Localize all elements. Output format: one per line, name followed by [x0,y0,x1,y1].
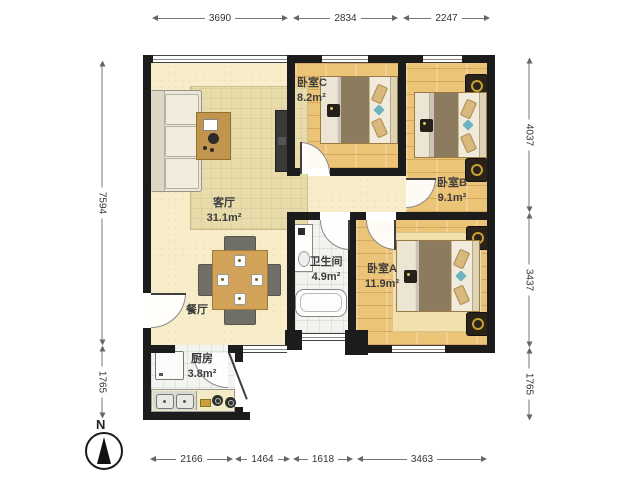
dimension-bottom-3: 1618 [293,452,353,466]
wall-segment [350,212,366,220]
remote-on-table [203,119,218,131]
room-name: 卧室C [297,76,327,91]
floor-plan: 客厅 31.1m² 餐厅 厨房 3.8m² 卫生间 4.9m² 卧室C 8.2m… [0,0,640,480]
sofa-cushion [165,126,199,157]
bedroom-c-bed [320,76,398,144]
nightstand [466,312,489,336]
sofa-back [151,91,165,191]
room-name: 客厅 [207,196,242,211]
bed-tray [404,270,417,283]
wall-segment [345,330,368,355]
room-name: 卧室A [365,262,399,277]
dimension-left-1: 7594 [96,61,110,346]
nightstand [465,158,488,182]
wall-segment [228,345,243,353]
wall-segment [487,55,495,353]
bathroom-window [302,333,345,341]
pillow [371,84,388,105]
bathtub [295,289,347,317]
room-label-bedroom-b: 卧室B 9.1m² [437,176,467,206]
room-area: 11.9m² [365,277,399,292]
wall-segment [143,345,175,353]
tv-cabinet-detail [278,137,286,145]
north-label: N [96,417,105,432]
bed-tray [327,104,340,117]
pillow [460,99,477,120]
bedroom-b-window [423,55,462,63]
coffee-table [196,112,231,160]
dimension-value: 7594 [97,188,108,218]
room-area: 4.9m² [310,270,343,285]
wall-segment [285,330,302,350]
dining-window [243,345,287,353]
wall-segment [396,212,495,220]
bedroom-a-bed [396,240,480,312]
wall-segment [398,63,406,168]
plate [234,293,246,305]
dimension-left-2: 1765 [96,346,110,419]
dimension-value: 1464 [247,454,277,465]
bed-headboard [390,77,397,143]
fridge-handle [159,373,163,376]
sink-basin [156,394,174,409]
fridge [155,351,184,380]
dimension-value: 1618 [308,454,338,465]
dimension-right-3: 1765 [523,348,537,421]
dimension-value: 3463 [407,454,437,465]
accent-pillow [373,104,384,115]
compass-circle [85,432,123,470]
room-label-dining: 餐厅 [186,303,208,318]
room-area: 9.1m² [437,191,467,206]
wall-segment [287,213,295,341]
dimension-top-3: 2247 [403,11,490,25]
bedroom-c-door-leaf [300,142,302,174]
plate [234,255,246,267]
dimension-bottom-1: 2166 [150,452,233,466]
dimension-value: 2247 [431,13,461,24]
dimension-value: 1765 [524,369,535,399]
counter-item [200,399,211,407]
wall-segment [287,212,320,220]
dining-table [212,250,268,310]
teapot [208,133,219,144]
bedroom-b-door-leaf [406,178,436,180]
north-arrow-icon [97,437,111,464]
wall-segment [368,345,392,353]
plate [251,274,263,286]
living-room-window [153,55,287,63]
bathtub-inner [300,293,342,312]
bed-pillows [451,241,472,311]
dimension-top-1: 3690 [152,11,288,25]
bed-pillows [369,77,390,143]
wall-segment [445,345,495,353]
room-label-bedroom-a: 卧室A 11.9m² [365,262,399,292]
wall-segment [330,168,406,176]
sofa [150,90,202,192]
wall-segment [143,328,151,420]
pillow [453,285,470,306]
pillow [453,249,470,270]
pillow [460,133,477,154]
stove-burner [212,395,223,406]
pillow [371,118,388,139]
wall-segment [235,353,243,362]
kitchen-sink-unit [153,391,197,410]
room-name: 厨房 [188,352,217,367]
dimension-value: 2166 [176,454,206,465]
bathroom-door-leaf [348,220,350,250]
cup [210,148,214,152]
cup [203,146,207,150]
accent-pillow [462,119,473,130]
faucet [298,228,305,235]
bed-blanket [415,93,458,157]
room-area: 31.1m² [207,211,242,226]
dimension-right-2: 3437 [523,213,537,348]
wall-segment [143,55,151,293]
bed-blanket [397,241,451,311]
bed-pillows [458,93,479,157]
sink-bowl [298,251,310,267]
sink-basin [176,394,194,409]
dimension-right-1: 4037 [523,58,537,213]
entry-door-leaf [151,293,186,295]
dimension-bottom-2: 1464 [235,452,290,466]
room-area: 3.8m² [188,367,217,382]
accent-pillow [455,270,466,281]
room-name: 餐厅 [186,303,208,318]
bedroom-a-window [392,345,445,353]
wall-segment [368,55,423,63]
dimension-value: 3437 [524,265,535,295]
bedroom-b-bed [414,92,487,158]
bedroom-a-door-leaf [394,220,396,250]
sofa-cushion [165,158,199,189]
room-label-kitchen: 厨房 3.8m² [188,352,217,382]
dimension-value: 2834 [330,13,360,24]
room-label-living: 客厅 31.1m² [207,196,242,226]
room-label-bedroom-c: 卧室C 8.2m² [297,76,327,106]
room-label-bathroom: 卫生间 4.9m² [310,255,343,285]
kitchen-counter [151,389,235,412]
room-name: 卫生间 [310,255,343,270]
bed-headboard [472,241,479,311]
sofa-cushion [165,94,199,125]
dimension-value: 3690 [205,13,235,24]
dimension-top-2: 2834 [293,11,398,25]
bed-headboard [479,93,486,157]
wall-segment [287,55,322,63]
dimension-value: 4037 [524,120,535,150]
bedroom-c-window [322,55,368,63]
wall-segment [143,412,250,420]
bed-tray [420,119,433,132]
room-area: 8.2m² [297,91,327,106]
dimension-value: 1765 [97,367,108,397]
bed-blanket [321,77,369,143]
dimension-bottom-4: 3463 [357,452,487,466]
wall-segment [287,63,295,176]
room-name: 卧室B [437,176,467,191]
plate [217,274,229,286]
